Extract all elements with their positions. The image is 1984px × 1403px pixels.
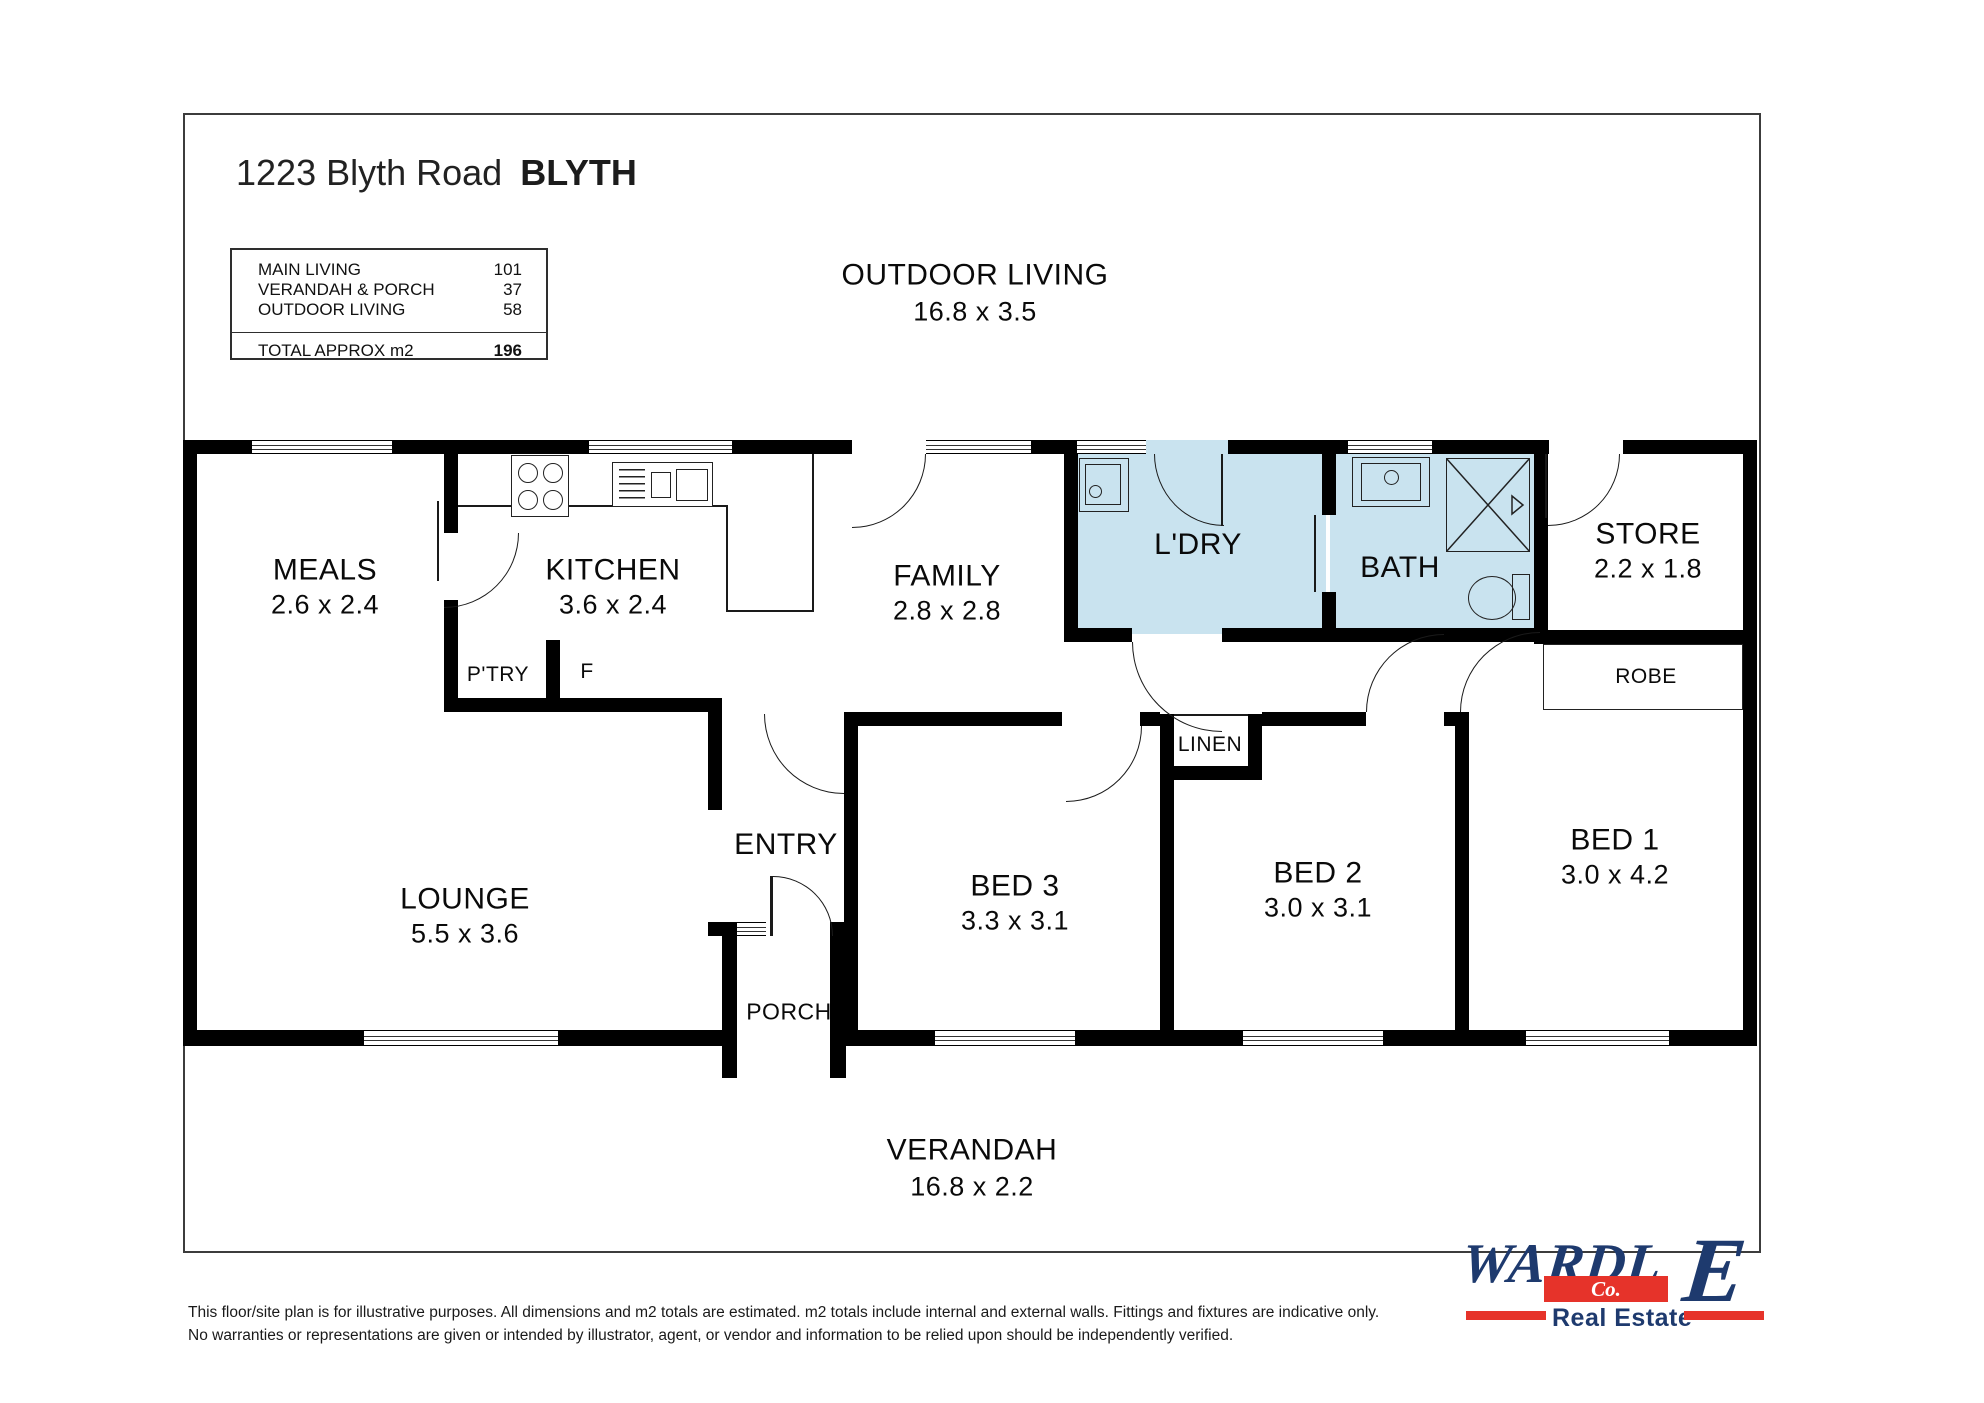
wall-segment — [444, 698, 722, 712]
door-leaf — [770, 876, 773, 936]
wall-segment — [1322, 454, 1336, 515]
wall-segment — [558, 1030, 737, 1046]
toilet-icon — [1468, 574, 1530, 622]
agency-logo: WARDL E Co. Real Estate — [1452, 1228, 1872, 1358]
bench-line — [726, 610, 814, 612]
wall-segment — [1669, 1030, 1757, 1046]
stove-icon — [511, 455, 569, 517]
wall-segment — [1228, 440, 1348, 454]
window — [252, 440, 392, 454]
floor-plan-page: 1223 Blyth Road BLYTH MAIN LIVING101 VER… — [0, 0, 1984, 1403]
room-label-bed3: BED 3 3.3 x 3.1 — [961, 870, 1069, 937]
door-leaf — [1221, 454, 1223, 526]
room-label-store: STORE 2.2 x 1.8 — [1594, 518, 1702, 585]
wall-segment — [1075, 1030, 1243, 1046]
wall-segment — [732, 440, 852, 454]
legend-total-row: TOTAL APPROX m2196 — [232, 332, 546, 361]
logo-co-badge: Co. — [1544, 1276, 1668, 1302]
wall-segment — [444, 600, 458, 712]
door-leaf — [437, 501, 439, 581]
window — [935, 1030, 1075, 1046]
room-label-bed2: BED 2 3.0 x 3.1 — [1264, 857, 1372, 924]
window — [364, 1030, 558, 1046]
room-label-linen: LINEN — [1178, 733, 1242, 757]
wall-segment — [708, 922, 737, 936]
wall-segment — [1160, 714, 1174, 1030]
wall-segment — [722, 936, 737, 1078]
room-label-kitchen: KITCHEN 3.6 x 2.4 — [545, 554, 680, 621]
shower-icon — [1446, 458, 1530, 552]
wall-segment — [1534, 630, 1757, 644]
room-label-family: FAMILY 2.8 x 2.8 — [893, 560, 1001, 627]
logo-red-bar-right — [1684, 1311, 1764, 1320]
wall-segment — [1140, 712, 1160, 726]
page-title: 1223 Blyth Road BLYTH — [236, 152, 637, 194]
disclaimer-line-1: This floor/site plan is for illustrative… — [188, 1304, 1379, 1322]
wall-segment — [1743, 440, 1757, 1046]
door-leaf — [1314, 515, 1316, 592]
room-label-bed1: BED 1 3.0 x 4.2 — [1561, 824, 1669, 891]
window — [1526, 1030, 1669, 1046]
room-label-lounge: LOUNGE 5.5 x 3.6 — [400, 883, 530, 950]
legend-row: OUTDOOR LIVING58 — [258, 300, 522, 320]
laundry-trough-icon — [1079, 458, 1129, 512]
verandah-label: VERANDAH 16.8 x 2.2 — [887, 1134, 1058, 1203]
window — [926, 440, 1031, 454]
legend-row: VERANDAH & PORCH37 — [258, 280, 522, 300]
wall-segment — [1262, 712, 1366, 726]
room-label-ldry: L'DRY — [1154, 528, 1242, 562]
room-label-fridge: F — [580, 660, 593, 684]
kitchen-sink-icon — [612, 462, 713, 507]
logo-red-bar-left — [1466, 1311, 1546, 1320]
bath-basin-icon — [1352, 457, 1430, 507]
room-label-bath: BATH — [1360, 551, 1440, 585]
window — [737, 922, 766, 936]
wall-segment — [183, 1030, 364, 1046]
wall-segment — [183, 440, 197, 1046]
window — [1077, 440, 1146, 454]
wall-segment — [1383, 1030, 1526, 1046]
bench-line — [726, 505, 728, 612]
wall-segment — [444, 454, 458, 533]
title-address: 1223 Blyth Road — [236, 152, 502, 193]
wall-segment — [1064, 628, 1132, 642]
room-label-entry: ENTRY — [734, 828, 838, 862]
room-label-robe: ROBE — [1615, 665, 1677, 689]
window — [1243, 1030, 1383, 1046]
window — [589, 440, 732, 454]
wall-segment — [1623, 440, 1757, 454]
area-legend: MAIN LIVING101 VERANDAH & PORCH37 OUTDOO… — [230, 248, 548, 360]
wall-segment — [1222, 628, 1534, 642]
wall-segment — [392, 440, 589, 454]
wall-segment — [1455, 712, 1469, 1030]
wall-segment — [844, 712, 858, 1030]
bench-line — [812, 454, 814, 612]
title-suburb: BLYTH — [520, 152, 637, 193]
wall-segment — [1064, 454, 1078, 642]
logo-tagline: Real Estate — [1552, 1304, 1692, 1333]
door-leaf — [1545, 454, 1547, 518]
room-label-pantry: P'TRY — [467, 663, 529, 687]
room-label-porch: PORCH — [746, 999, 832, 1026]
outdoor-living-label: OUTDOOR LIVING 16.8 x 3.5 — [841, 259, 1108, 328]
disclaimer-line-2: No warranties or representations are giv… — [188, 1327, 1233, 1345]
wall-segment — [546, 640, 560, 712]
wall-segment — [708, 712, 722, 810]
logo-brand-letter-e: E — [1679, 1224, 1750, 1316]
room-label-meals: MEALS 2.6 x 2.4 — [271, 554, 379, 621]
wall-segment — [844, 712, 1062, 726]
wall-segment — [1322, 592, 1336, 642]
wall-segment — [1031, 440, 1077, 454]
wall-segment — [1432, 440, 1549, 454]
window — [1348, 440, 1432, 454]
legend-row: MAIN LIVING101 — [258, 260, 522, 280]
wall-segment — [1160, 766, 1262, 780]
